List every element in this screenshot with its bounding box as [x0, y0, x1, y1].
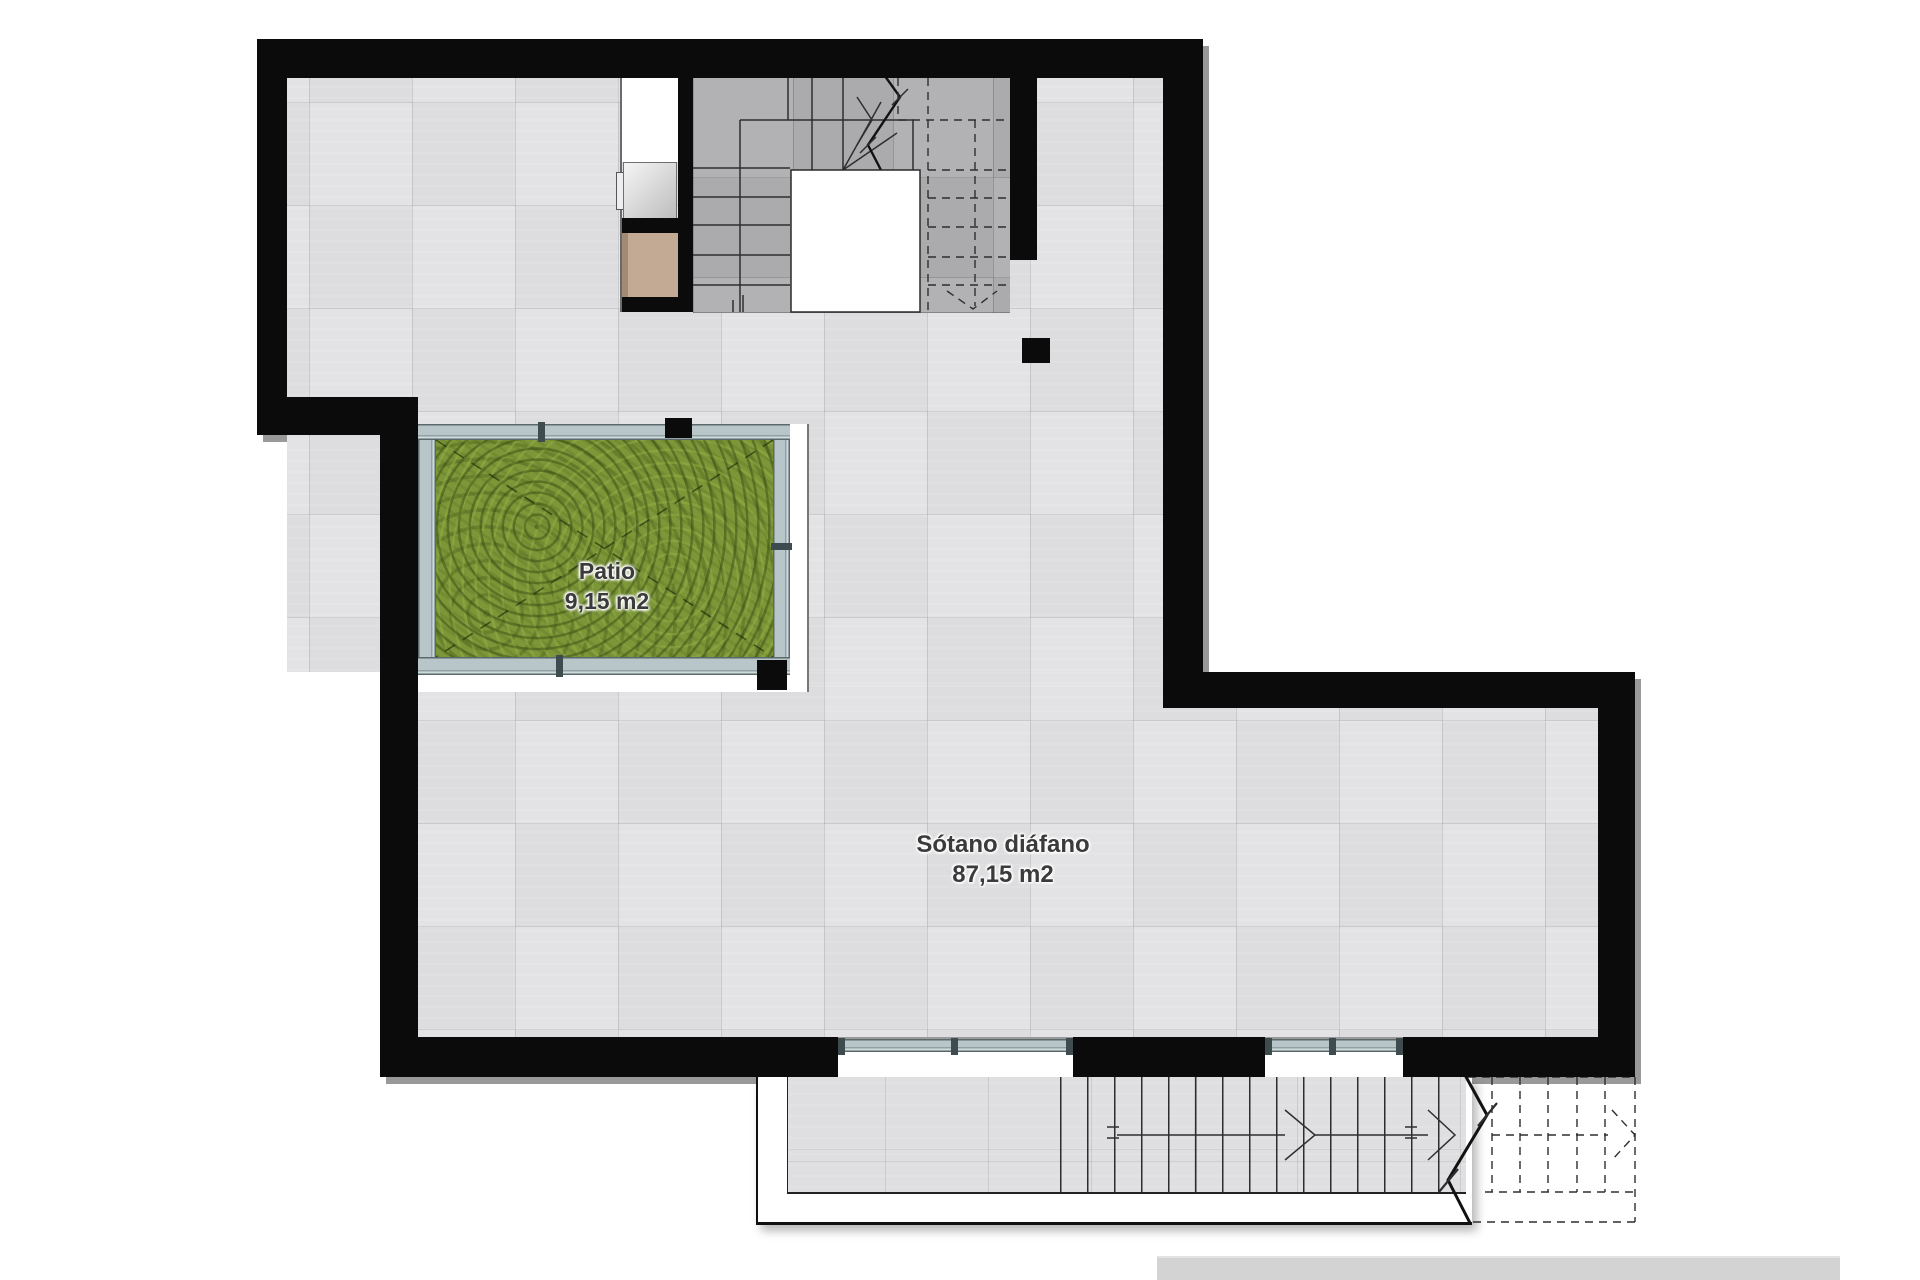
patio-glazing-left: [418, 440, 436, 657]
wall-niche-side: [678, 78, 693, 312]
patio-name: Patio: [467, 556, 747, 586]
terrace-stair-drawing: [740, 1065, 1660, 1235]
wall-bottom-left: [380, 1037, 838, 1077]
window-1-post-right: [1066, 1038, 1073, 1055]
patio-margin-bottom: [418, 675, 790, 692]
structural-column: [1022, 338, 1050, 363]
appliance-box: [623, 162, 677, 219]
wall-bottom-right: [1403, 1037, 1635, 1077]
appliance-handle: [616, 172, 623, 210]
window-1-mullion: [951, 1038, 958, 1055]
wall-right-lower: [1598, 672, 1635, 1077]
niche: [622, 78, 678, 162]
patio-column-top: [665, 418, 692, 438]
wall-bottom-mid: [1073, 1037, 1265, 1077]
basement-label: Sótano diáfano 87,15 m2: [843, 830, 1163, 890]
window-2-mullion: [1329, 1038, 1336, 1055]
wall-mid-step: [1163, 672, 1635, 708]
patio-glazing-bottom: [418, 657, 790, 675]
patio-margin-edge-line: [807, 424, 809, 692]
window-2-post-left: [1265, 1038, 1272, 1055]
cabinet-box: [622, 232, 683, 298]
patio-mullion-right: [771, 543, 792, 550]
patio-margin-right: [790, 424, 807, 692]
patio-mullion-top: [538, 422, 545, 442]
wall-niche-band-2: [622, 297, 678, 312]
wall-left-lower: [380, 397, 418, 1077]
wall-right-upper: [1163, 39, 1203, 708]
stair-core-drawing: [693, 78, 1037, 318]
wall-niche-band-1: [622, 218, 678, 233]
patio-glazing-top: [418, 424, 790, 440]
wall-left-upper: [257, 39, 287, 435]
patio-area: 9,15 m2: [467, 586, 747, 616]
basement-area: 87,15 m2: [843, 860, 1163, 890]
patio-diagonals: [436, 440, 773, 657]
patio-column-bottom: [757, 660, 787, 690]
floor-plan: Patio 9,15 m2 Sótano diáfano 87,15 m2: [0, 0, 1920, 1280]
window-2-post-right: [1396, 1038, 1403, 1055]
window-1-post-left: [838, 1038, 845, 1055]
wall-stair-side: [1010, 78, 1037, 260]
watermark-bar: [1157, 1256, 1840, 1280]
patio-mullion-bottom: [556, 655, 563, 677]
wall-top: [257, 39, 1203, 78]
basement-name: Sótano diáfano: [843, 830, 1163, 860]
patio-label: Patio 9,15 m2: [467, 556, 747, 616]
